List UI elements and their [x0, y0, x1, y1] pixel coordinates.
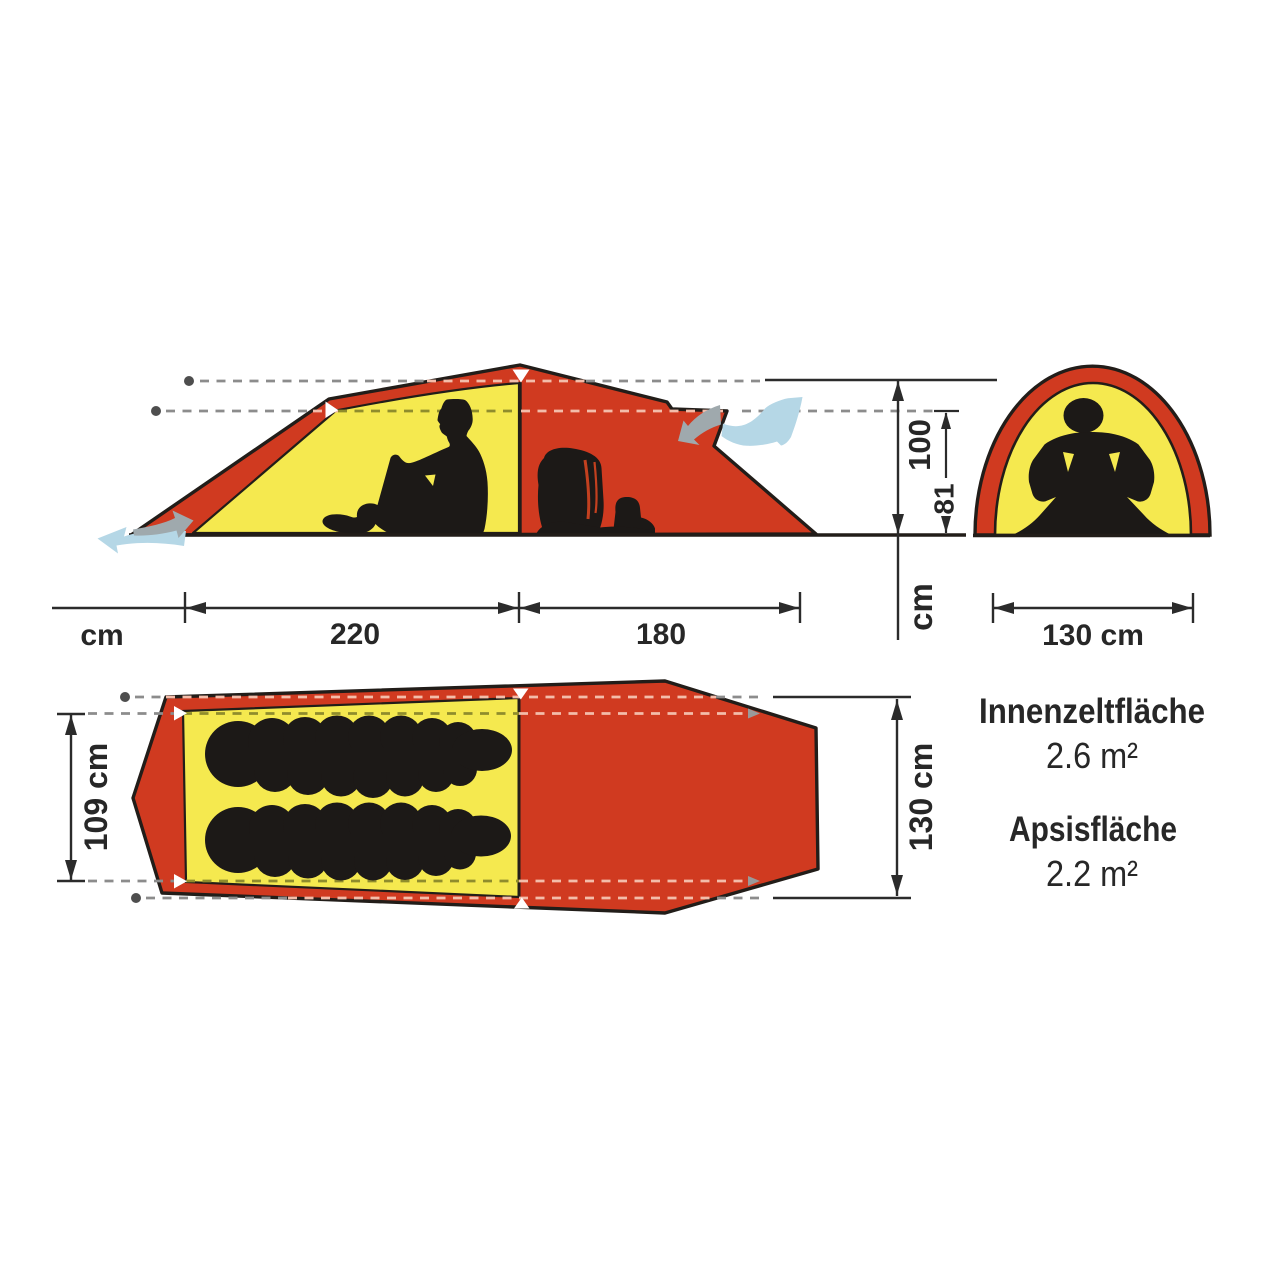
- svg-text:cm: cm: [902, 583, 939, 631]
- svg-text:130 cm: 130 cm: [903, 743, 939, 852]
- svg-text:2.6 m²: 2.6 m²: [1046, 735, 1138, 776]
- svg-text:Apsisfläche: Apsisfläche: [1009, 810, 1177, 849]
- svg-text:220: 220: [330, 618, 380, 651]
- svg-text:180: 180: [636, 618, 686, 651]
- svg-text:130 cm: 130 cm: [1042, 619, 1144, 652]
- svg-text:81: 81: [929, 483, 960, 514]
- svg-text:cm: cm: [80, 619, 123, 652]
- svg-text:109 cm: 109 cm: [78, 743, 114, 852]
- svg-text:Innenzeltfläche: Innenzeltfläche: [979, 692, 1205, 731]
- svg-text:2.2 m²: 2.2 m²: [1046, 853, 1138, 894]
- svg-text:100: 100: [902, 419, 937, 471]
